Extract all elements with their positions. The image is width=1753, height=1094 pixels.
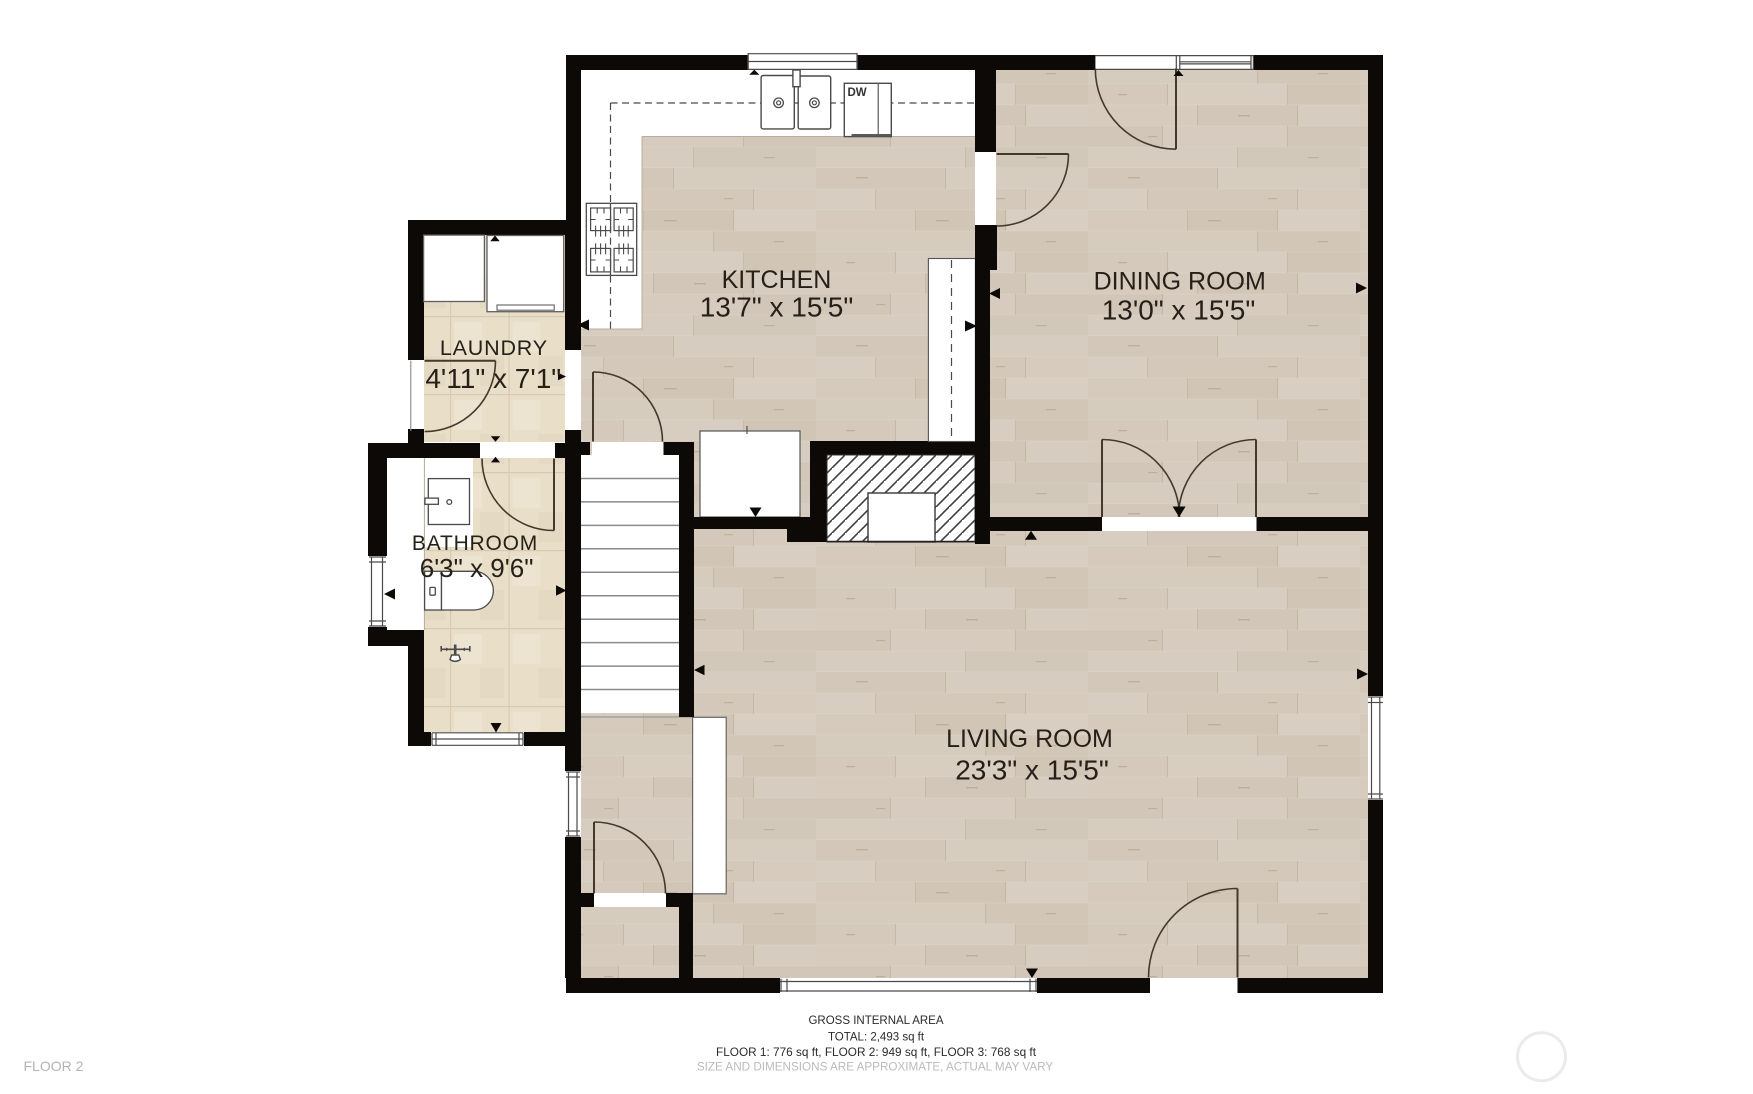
svg-text:BATHROOM: BATHROOM [412, 532, 538, 555]
svg-text:4'11" x 7'1": 4'11" x 7'1" [425, 363, 561, 394]
svg-text:23'3" x 15'5": 23'3" x 15'5" [955, 754, 1109, 785]
svg-text:LAUNDRY: LAUNDRY [440, 336, 548, 360]
svg-text:FLOOR 2: FLOOR 2 [24, 1058, 84, 1074]
svg-text:13'7" x 15'5": 13'7" x 15'5" [700, 292, 854, 323]
svg-text:DW: DW [848, 87, 867, 99]
svg-text:13'0" x 15'5": 13'0" x 15'5" [1102, 295, 1256, 326]
svg-text:TOTAL: 2,493 sq ft: TOTAL: 2,493 sq ft [828, 1031, 925, 1043]
svg-text:GROSS INTERNAL AREA: GROSS INTERNAL AREA [808, 1015, 943, 1027]
svg-text:LIVING ROOM: LIVING ROOM [946, 725, 1113, 753]
svg-text:6'3" x 9'6": 6'3" x 9'6" [420, 553, 534, 583]
svg-text:FLOOR 1: 776 sq ft, FLOOR 2: 9: FLOOR 1: 776 sq ft, FLOOR 2: 949 sq ft, … [716, 1045, 1037, 1059]
svg-text:KITCHEN: KITCHEN [722, 266, 832, 294]
svg-text:SIZE AND DIMENSIONS ARE APPROX: SIZE AND DIMENSIONS ARE APPROXIMATE, ACT… [697, 1060, 1054, 1073]
svg-text:DINING ROOM: DINING ROOM [1094, 267, 1266, 295]
